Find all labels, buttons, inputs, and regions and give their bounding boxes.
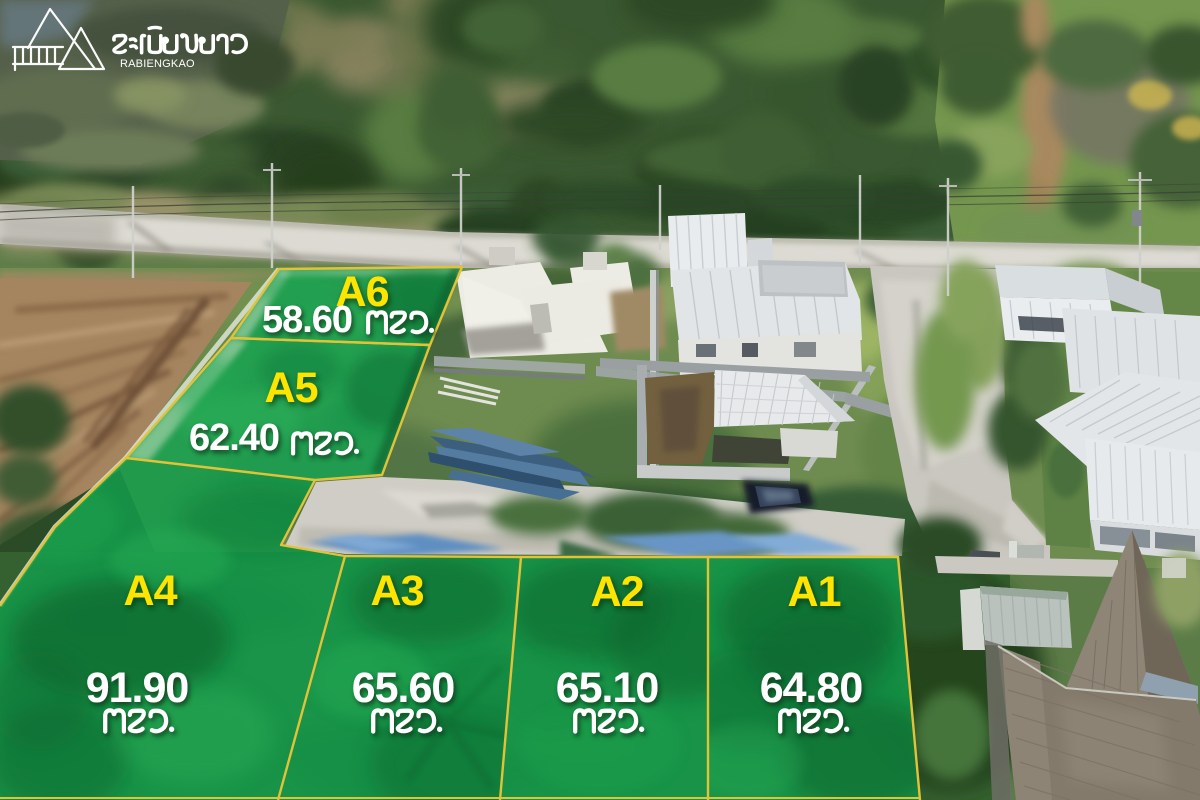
svg-text:A3: A3 [371, 567, 424, 615]
svg-text:65.60: 65.60 [352, 664, 455, 712]
svg-text:A5: A5 [265, 364, 318, 412]
svg-text:62.40: 62.40 [189, 417, 279, 459]
svg-text:A2: A2 [591, 568, 644, 616]
svg-text:91.90: 91.90 [86, 664, 189, 712]
svg-text:58.60: 58.60 [262, 299, 352, 341]
svg-text:RABIENGKAO: RABIENGKAO [120, 58, 195, 70]
svg-text:64.80: 64.80 [760, 664, 863, 712]
svg-text:A4: A4 [124, 567, 178, 615]
svg-text:65.10: 65.10 [556, 664, 659, 712]
svg-text:A1: A1 [788, 568, 841, 616]
